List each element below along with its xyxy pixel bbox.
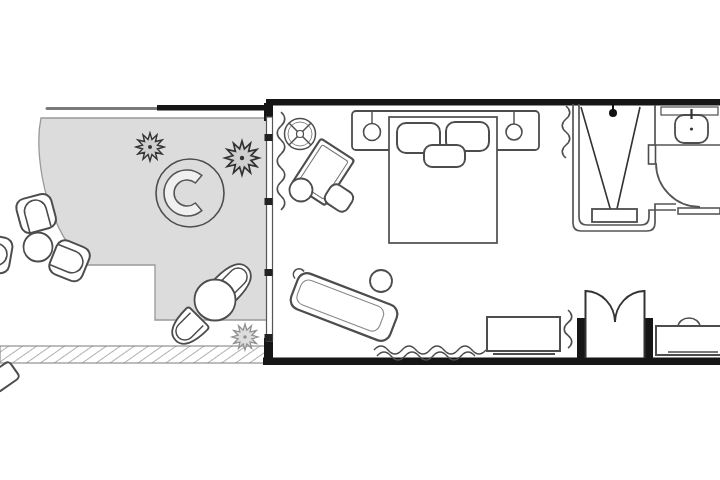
side-table: [24, 233, 53, 262]
wall-lamp-icon: [506, 124, 522, 140]
shower-bench: [592, 209, 637, 222]
walkway-hatch: [0, 346, 266, 363]
bistro-table: [195, 280, 236, 321]
dresser: [487, 317, 560, 351]
bathroom-wall-stub: [649, 145, 656, 164]
entry-door-jamb-right: [645, 318, 653, 360]
floor-plan-page: [0, 0, 720, 480]
left-wall-bottom-stub: [264, 338, 273, 362]
top-wall: [266, 99, 720, 106]
plant-center-dot: [148, 145, 152, 149]
round-cushion: [370, 270, 392, 292]
drain-dot: [690, 127, 693, 130]
mullion-tick: [265, 334, 273, 341]
entry-door-jamb-left: [577, 318, 585, 360]
plant-center-dot: [243, 335, 247, 339]
bathroom-bottom-wall: [678, 208, 720, 214]
stool: [290, 179, 313, 202]
bed-runner-cushion: [424, 145, 465, 167]
shower-head-icon: [609, 109, 617, 117]
luggage-bench: [656, 326, 720, 355]
floor-plan: [0, 0, 720, 480]
terrace-top-wall: [157, 105, 269, 111]
mullion-tick: [265, 269, 273, 276]
mullion-tick: [265, 198, 273, 205]
vanity-shelf: [661, 107, 718, 115]
wall-lamp-icon: [364, 124, 381, 141]
window-wall: [267, 117, 273, 341]
plant-center-dot: [240, 156, 244, 160]
mullion-tick: [265, 134, 273, 141]
